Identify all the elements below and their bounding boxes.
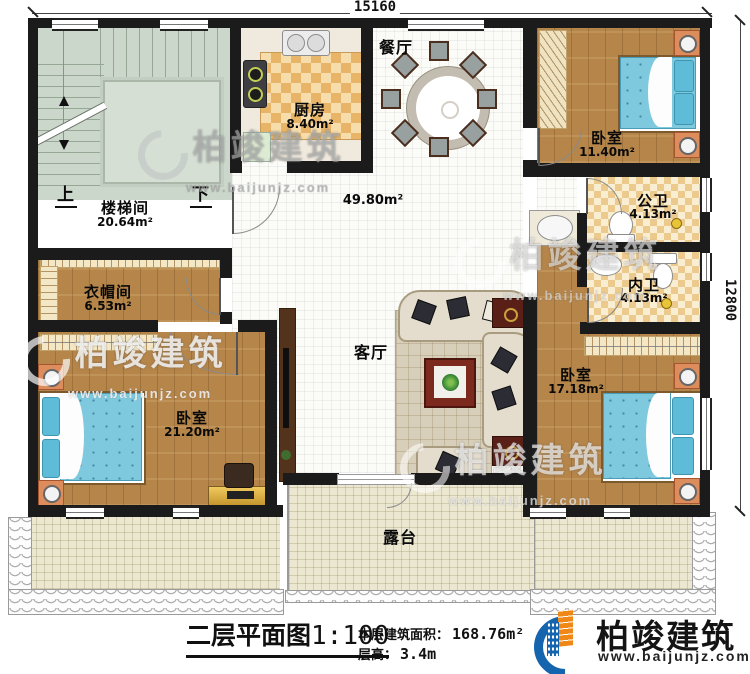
brand-logo-icon [534,608,590,666]
room-area-cloakroom: 6.53m² [84,299,131,313]
lamp-icon [679,35,697,53]
sink-icon [590,254,622,276]
chair [429,137,449,157]
nightstand [674,132,700,158]
wall-segment [411,473,523,485]
window [52,18,98,31]
lamp-icon [679,483,697,501]
room-area-living: 49.80m² [343,193,403,208]
door-leaf [232,187,234,234]
bed-sheet [646,393,670,477]
pillow [672,397,694,435]
window [700,253,712,281]
stove-icon [243,60,267,108]
wall-segment [220,312,232,324]
lamp-icon [43,485,61,503]
window [604,506,630,519]
wall-segment [230,18,241,173]
pillow [42,439,60,478]
nightstand [38,364,64,390]
kitchen-counter [243,132,271,162]
door-leaf [219,278,221,315]
window [173,506,199,519]
floor-height-label: 层高： [358,644,397,663]
window [66,506,104,519]
wall-segment [523,297,537,505]
room-area-bedroom1: 11.40m² [579,145,635,159]
stair-label-down: 下 [190,180,212,208]
room-area-private-bath: 4.13m² [620,291,667,305]
dimension-tick [27,6,38,17]
desk-item [227,491,254,499]
window [160,18,208,31]
room-area-kitchen: 8.40m² [286,117,333,131]
wall-segment [220,248,232,278]
room-area-stairwell: 20.64m² [97,215,153,229]
closet-hangers [539,30,567,129]
wall-segment [283,473,339,485]
chair [429,41,449,61]
floor-plan-canvas: 楼梯间 20.64m² 上 下 厨房 8.40m² 餐厅 卧室 11.40m² … [0,0,750,674]
burner [248,87,263,102]
closet-hangers [40,266,58,322]
window [700,398,712,470]
floor-area-value: 168.76m² [452,625,524,643]
terrace-floor-left [28,517,280,589]
wall-segment [577,252,587,287]
floor-area-row: 本层建筑面积： 168.76m² [358,624,524,643]
closet-hangers [584,336,702,356]
burner [248,67,263,82]
stair-landing [103,80,221,184]
logo-building-blue [547,622,559,656]
chair [477,89,497,109]
dimension-width: 15160 [350,0,400,15]
end-table [492,298,526,328]
wall-segment [28,18,38,517]
pillow [674,60,694,92]
room-label-living: 客厅 [354,339,388,363]
floor-area-label: 本层建筑面积： [358,624,449,643]
sink-basin [287,34,305,52]
wall-segment [28,320,158,332]
stair-arrow-down-icon [59,140,69,150]
closet-hangers [40,334,158,351]
plant-icon [442,374,459,391]
dimension-line-right [740,20,741,512]
coffee-table [424,358,476,408]
stair-label-up: 上 [55,180,77,208]
terrace-floor-right [535,517,700,589]
door-leaf [538,128,540,166]
sink-basin [307,34,325,52]
stair-arrow-up-icon [59,96,69,106]
logo-building-orange [558,609,573,647]
window [530,506,566,519]
table-center [441,101,459,119]
wall-segment [361,18,373,173]
railing [285,590,536,603]
room-area-public-bath: 4.13m² [629,207,676,221]
wall-segment [28,248,222,260]
room-label-dining: 餐厅 [379,34,413,58]
door-leaf [587,288,589,323]
nightstand [38,480,64,506]
lamp-icon [679,368,697,386]
dimension-tick [701,6,712,17]
sofa-cushion [491,385,516,410]
wall-segment [523,28,537,128]
wall-segment [265,320,277,505]
kitchen-sink-icon [282,30,330,56]
nightstand [674,363,700,389]
sofa-cushion [490,346,517,373]
brand-website: www.baijunjz.com [598,648,750,664]
wall-segment [580,322,710,334]
tv-icon [283,348,289,428]
room-area-bedroom2: 21.20m² [164,425,220,439]
floor-height-value: 3.4m [400,645,436,663]
wall-segment [577,242,710,252]
stair-treads [100,28,232,80]
nightstand [674,30,700,56]
table-lamp-icon [505,446,519,460]
room-label-terrace: 露台 [383,524,417,548]
lamp-icon [679,137,697,155]
window [408,18,484,31]
stairwell-floor [38,28,232,200]
vanity-counter [529,210,580,246]
pillow [672,437,694,475]
railing [692,512,716,594]
plan-title: 二层平面图 [186,616,311,652]
dimension-height: 12800 [722,275,738,325]
table-lamp-icon [504,308,518,322]
chair [381,89,401,109]
room-area-bedroom3: 17.18m² [548,382,604,396]
sofa-cushion [411,299,437,325]
door-leaf [236,332,238,375]
wall-segment [523,163,710,177]
sofa-cushion [446,296,470,320]
lamp-icon [43,369,61,387]
bed-sheet [60,393,84,479]
floor-height-row: 层高： 3.4m [358,644,436,663]
nightstand [674,478,700,504]
pillow [674,93,694,125]
sink-icon [537,215,573,241]
door-leaf [586,178,588,214]
pillow [42,397,60,436]
railing [8,589,284,615]
plant-icon [281,450,291,460]
wall-segment [230,161,242,173]
window [700,178,712,212]
desk-chair [224,463,254,488]
bed-sheet [648,57,672,127]
